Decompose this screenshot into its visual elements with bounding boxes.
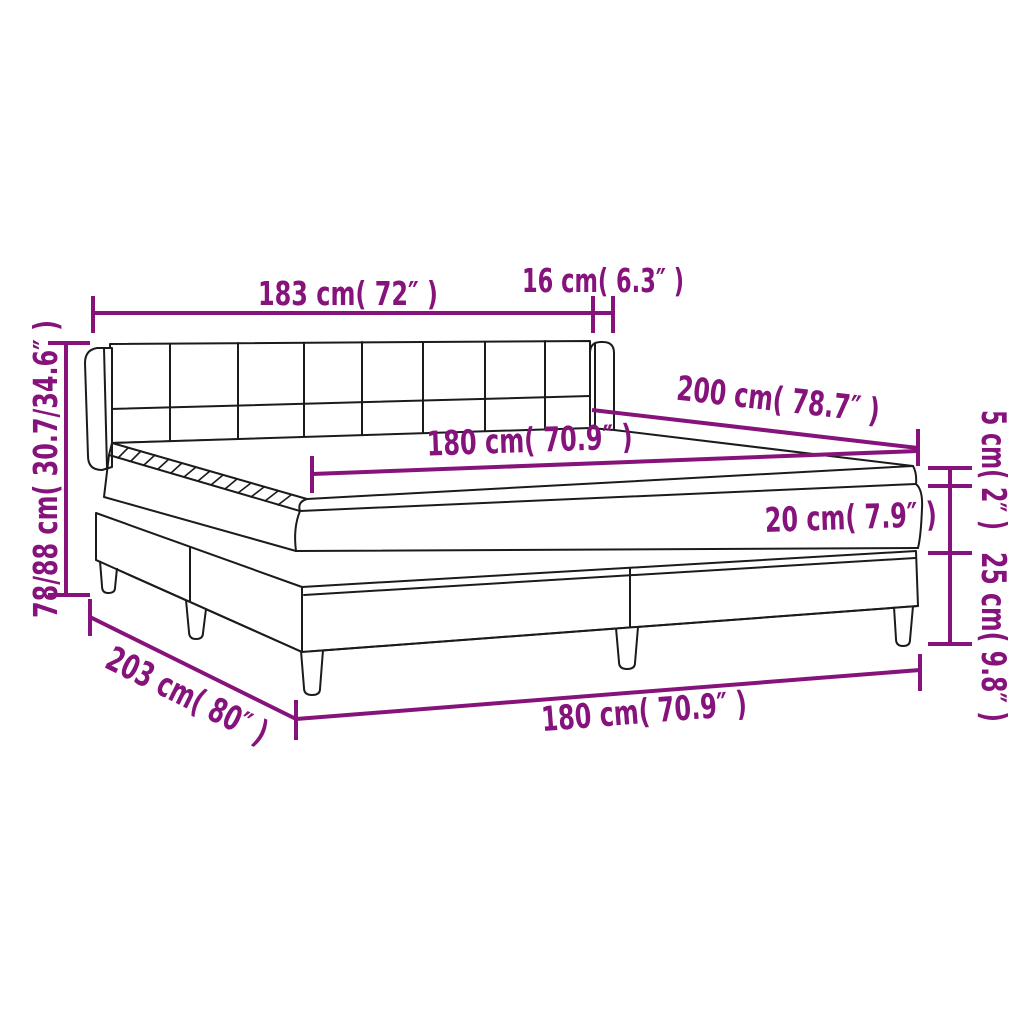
label-overall-height: 78/88 cm( 30.7/34.6″ ): [26, 320, 65, 618]
bed-diagram-canvas: 183 cm( 72″ ) 16 cm( 6.3″ ) 78/88 cm( 30…: [0, 0, 1024, 1024]
label-base-height: 25 cm( 9.8″ ): [973, 552, 1013, 722]
mattress-front-left-corner: [295, 511, 300, 551]
dimension-labels: 183 cm( 72″ ) 16 cm( 6.3″ ) 78/88 cm( 30…: [26, 261, 1013, 753]
bed-leg-front-middle: [616, 627, 638, 669]
bed-leg-front-right: [894, 606, 913, 646]
base-front-face: [302, 551, 918, 652]
headboard-left-wing: [85, 348, 112, 470]
label-mattress-width: 180 cm( 70.9″ ): [426, 417, 633, 464]
mattress-front-lower-edge: [296, 548, 918, 551]
product-dimension-diagram: 183 cm( 72″ ) 16 cm( 6.3″ ) 78/88 cm( 30…: [0, 0, 1024, 1024]
label-wing-depth: 16 cm( 6.3″ ): [522, 261, 684, 300]
label-headboard-width: 183 cm( 72″ ): [258, 274, 438, 313]
label-mattress-top-height: 5 cm( 2″ ): [973, 410, 1013, 530]
label-base-width: 180 cm( 70.9″ ): [540, 684, 749, 740]
bed-leg-front-corner: [301, 650, 323, 695]
label-mattress-height: 20 cm( 7.9″ ): [764, 495, 937, 541]
